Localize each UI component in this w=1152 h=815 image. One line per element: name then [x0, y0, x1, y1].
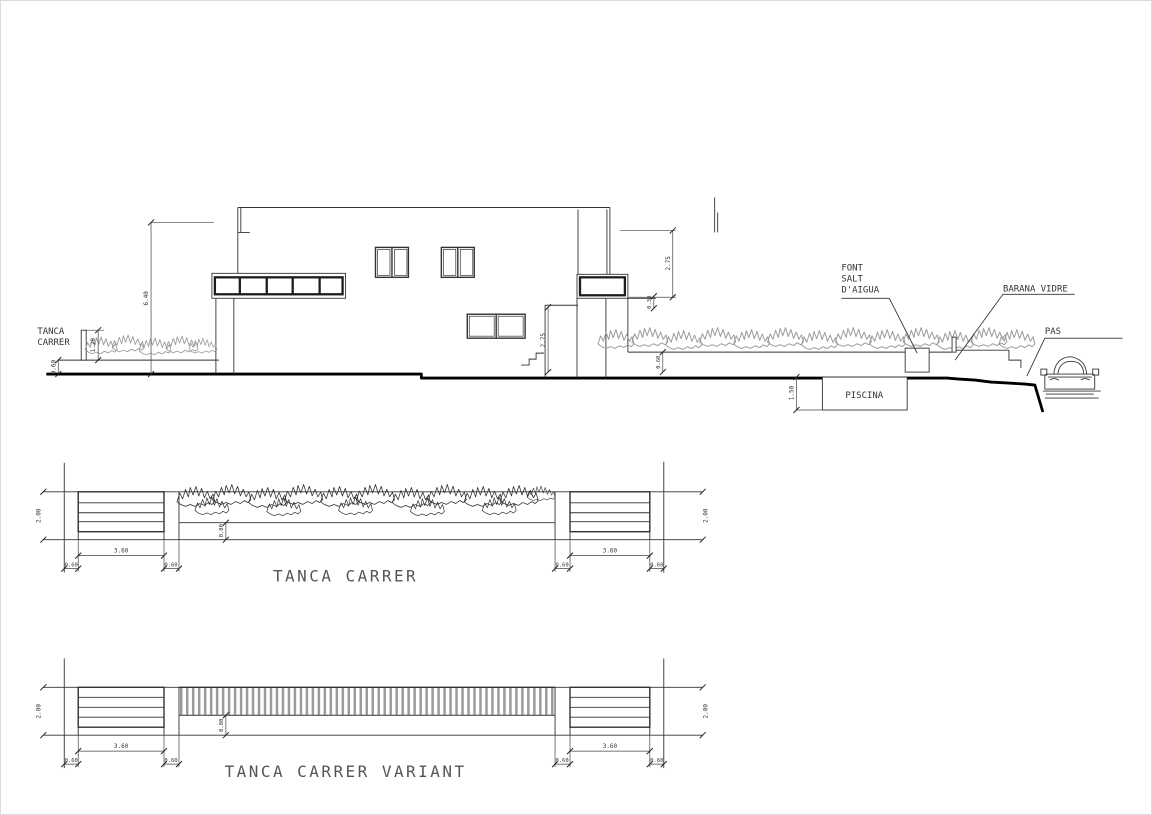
elevation-view: PISCINA TANCA CARRER FONT SALT D'AIGUA B…: [37, 198, 1122, 413]
hedge-infill: [177, 485, 555, 516]
dim-infill: 0.80: [219, 719, 225, 732]
lower-window: [467, 314, 525, 338]
street-fence: [58, 330, 219, 360]
dim-pillar-2: 0.60: [164, 758, 177, 764]
dim-slab-edge: 0.30: [647, 296, 653, 309]
dim-infill: 0.80: [219, 524, 225, 537]
dim-panel-left: 3.60: [114, 743, 129, 750]
dim-overall-height: 6.40: [143, 291, 150, 306]
railing-post: [952, 337, 956, 352]
dim-pool-depth: 1.50: [788, 385, 795, 400]
tanca-carrer-label-2: CARRER: [37, 338, 70, 348]
fence-detail-dimensions: 2.00 2.00 3.60 3.60 0.60 0.60 0.60 0.60 …: [35, 489, 709, 572]
dim-panel-left: 3.60: [114, 548, 129, 555]
dim-height-right: 2.00: [703, 704, 710, 719]
fence-variant-detail: 2.00 2.00 3.60 3.60 0.60 0.60 0.60 0.60 …: [35, 658, 709, 781]
hedge-right: [598, 328, 1035, 350]
upper-window-1: [375, 247, 408, 277]
dim-pillar-1: 0.60: [65, 563, 78, 569]
rail-panel-right: [570, 687, 650, 727]
dim-upper-level: 2.75: [665, 256, 672, 271]
vertical-slat-infill: [179, 687, 555, 715]
dim-pillar-1: 0.60: [65, 758, 78, 764]
dim-lower-level: 2.75: [540, 333, 547, 348]
upper-window-2: [441, 247, 474, 277]
architectural-drawing-sheet: PISCINA TANCA CARRER FONT SALT D'AIGUA B…: [0, 0, 1152, 815]
fence-variant-title: TANCA CARRER VARIANT: [225, 762, 467, 781]
planter-wall: [598, 328, 1035, 372]
rail-panel-right: [570, 492, 650, 532]
dim-pillar-4: 0.60: [650, 758, 663, 764]
font-label-2: SALT: [841, 274, 863, 284]
fountain-box: [905, 348, 929, 372]
elevation-dimensions: 6.40 1.20 0.60 2.75 0.30 2.75 1.50 0.60: [50, 219, 822, 413]
dim-planter-wall: 0.60: [656, 356, 662, 369]
fence-detail-title: TANCA CARRER: [273, 567, 418, 586]
dim-pillar-3: 0.60: [555, 563, 568, 569]
glass-band: [577, 274, 628, 298]
fence-detail: 2.00 2.00 3.60 3.60 0.60 0.60 0.60 0.60 …: [35, 462, 709, 586]
dim-pillar-2: 0.60: [164, 563, 177, 569]
dim-panel-right: 3.60: [603, 743, 618, 750]
window-strip: [212, 273, 346, 298]
vehicle-front-view: [1041, 357, 1099, 394]
dim-panel-right: 3.60: [603, 548, 618, 555]
font-label-1: FONT: [841, 263, 863, 273]
pool: PISCINA: [822, 377, 907, 410]
dim-height-left: 2.00: [35, 704, 42, 719]
road-lines: [1043, 391, 1101, 398]
pas-label: PAS: [1045, 327, 1061, 337]
font-label-3: D'AIGUA: [841, 285, 879, 295]
font-leader: [841, 298, 917, 353]
rail-panel-left: [78, 687, 164, 727]
tanca-carrer-label-1: TANCA: [37, 327, 65, 337]
dim-pillar-3: 0.60: [555, 758, 568, 764]
dim-fence-body: 1.20: [90, 338, 97, 353]
rail-panel-left: [78, 492, 164, 532]
dim-height-left: 2.00: [35, 508, 42, 523]
drawing-canvas: PISCINA TANCA CARRER FONT SALT D'AIGUA B…: [1, 1, 1151, 814]
piscina-label: PISCINA: [845, 391, 883, 401]
dim-height-right: 2.00: [703, 508, 710, 523]
fence-post: [81, 330, 86, 360]
barana-label: BARANA VIDRE: [1003, 284, 1068, 294]
dim-fence-base: 0.60: [50, 360, 57, 375]
dim-pillar-4: 0.60: [650, 563, 663, 569]
